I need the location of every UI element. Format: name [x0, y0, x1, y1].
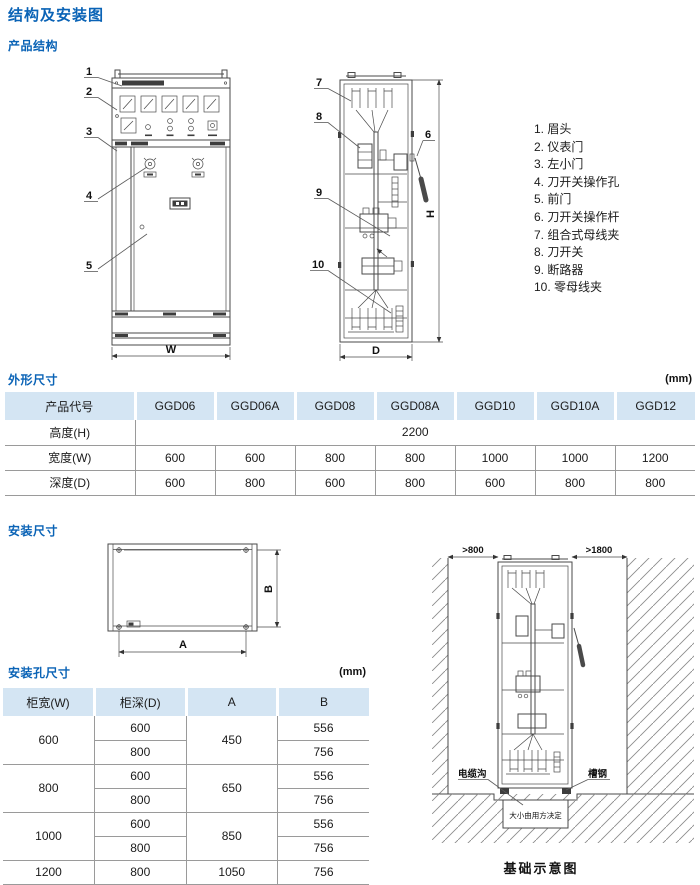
cell-w: 600	[3, 716, 95, 764]
col-header: 柜深(D)	[95, 688, 187, 716]
col-header: GGD06	[135, 392, 215, 420]
top-view-drawing: B A	[95, 536, 295, 668]
cell-b: 756	[278, 740, 370, 764]
col-header: GGD08	[295, 392, 375, 420]
catalog-page: { "page": { "title": "结构及安装图", "unit": "…	[0, 0, 700, 885]
cell-w: 1200	[3, 860, 95, 884]
dim-label-w: W	[166, 344, 177, 356]
install-hole-table: 柜宽(W) 柜深(D) A B 600 600 450 556 800 756 …	[3, 688, 369, 885]
unit-label: (mm)	[665, 373, 692, 385]
col-header: GGD10	[455, 392, 535, 420]
part-number-3: 3	[86, 126, 92, 138]
part-number-9: 9	[316, 187, 322, 199]
legend-item: 3. 左小门	[534, 156, 619, 174]
row-label: 宽度(W)	[5, 445, 135, 470]
table-row: 宽度(W) 600 600 800 800 1000 1000 1200	[5, 445, 695, 470]
cell: 800	[375, 470, 455, 495]
legend-item: 1. 眉头	[534, 121, 619, 139]
cell-d: 600	[95, 716, 187, 740]
cell-d: 600	[95, 764, 187, 788]
row-label: 高度(H)	[5, 420, 135, 445]
table-row: 高度(H) 2200	[5, 420, 695, 445]
dim-label-a: A	[179, 639, 187, 651]
cell: 1200	[615, 445, 695, 470]
part-number-5: 5	[86, 260, 92, 272]
col-header: B	[278, 688, 370, 716]
legend-item: 8. 刀开关	[534, 244, 619, 262]
part-number-7: 7	[316, 77, 322, 89]
dim-label-d: D	[372, 345, 380, 357]
cell: 1000	[535, 445, 615, 470]
legend-item: 7. 组合式母线夹	[534, 227, 619, 245]
cell-b: 556	[278, 716, 370, 740]
legend-item: 4. 刀开关操作孔	[534, 174, 619, 192]
clearance-right-label: >1800	[586, 545, 613, 556]
cell: 600	[215, 445, 295, 470]
col-header: GGD08A	[375, 392, 455, 420]
section-install-dimensions: 安装尺寸	[8, 522, 58, 539]
part-number-1: 1	[86, 66, 92, 78]
cell-w: 800	[3, 764, 95, 812]
cell-a: 450	[186, 716, 278, 764]
trench-note: 大小由用方决定	[509, 810, 562, 820]
col-header: 产品代号	[5, 392, 135, 420]
section-install-holes: 安装孔尺寸	[8, 664, 71, 681]
cell-d: 800	[95, 740, 187, 764]
part-number-6: 6	[425, 129, 431, 141]
table-row: 1200 800 1050 756	[3, 860, 369, 884]
cell-d: 800	[95, 836, 187, 860]
cell: 800	[375, 445, 455, 470]
cell: 1000	[455, 445, 535, 470]
outer-dim-table: 产品代号 GGD06 GGD06A GGD08 GGD08A GGD10 GGD…	[5, 392, 695, 496]
table-header-row: 柜宽(W) 柜深(D) A B	[3, 688, 369, 716]
table-row: 600 600 450 556	[3, 716, 369, 740]
col-header: GGD12	[615, 392, 695, 420]
cable-trench-label: 电缆沟	[458, 768, 487, 780]
section-product-structure: 产品结构	[8, 37, 58, 54]
cell: 600	[135, 445, 215, 470]
legend-item: 6. 刀开关操作杆	[534, 209, 619, 227]
cell-d: 800	[95, 788, 187, 812]
cell-a: 850	[186, 812, 278, 860]
cell-height-value: 2200	[135, 420, 695, 445]
cell: 800	[535, 470, 615, 495]
parts-legend: 1. 眉头 2. 仪表门 3. 左小门 4. 刀开关操作孔 5. 前门 6. 刀…	[534, 121, 619, 297]
cell-a: 650	[186, 764, 278, 812]
channel-steel-label: 槽钢	[588, 768, 608, 780]
front-view-drawing: W 1 2 3 4 5	[60, 56, 305, 370]
side-view-drawing: H D 7 8 9 10 6	[290, 56, 460, 370]
legend-item: 9. 断路器	[534, 262, 619, 280]
cell: 600	[295, 470, 375, 495]
col-header: GGD06A	[215, 392, 295, 420]
unit-label-2: (mm)	[300, 666, 366, 678]
table-row: 1000 600 850 556	[3, 812, 369, 836]
part-number-8: 8	[316, 111, 322, 123]
part-number-4: 4	[86, 190, 93, 202]
cell: 800	[615, 470, 695, 495]
table-header-row: 产品代号 GGD06 GGD06A GGD08 GGD08A GGD10 GGD…	[5, 392, 695, 420]
cell: 600	[455, 470, 535, 495]
col-header: A	[186, 688, 278, 716]
legend-item: 5. 前门	[534, 191, 619, 209]
row-label: 深度(D)	[5, 470, 135, 495]
cell-b: 756	[278, 788, 370, 812]
cell: 600	[135, 470, 215, 495]
table-row: 800 600 650 556	[3, 764, 369, 788]
cell: 800	[295, 445, 375, 470]
cell-d: 800	[95, 860, 187, 884]
part-number-10: 10	[312, 259, 324, 271]
clearance-left-label: >800	[462, 545, 483, 556]
page-title: 结构及安装图	[8, 4, 104, 25]
cell-w: 1000	[3, 812, 95, 860]
foundation-caption: 基础示意图	[432, 858, 650, 877]
cell-a: 1050	[186, 860, 278, 884]
col-header: GGD10A	[535, 392, 615, 420]
cell-b: 556	[278, 764, 370, 788]
dim-label-h: H	[425, 210, 437, 218]
table-row: 深度(D) 600 800 600 800 600 800 800	[5, 470, 695, 495]
cell-d: 600	[95, 812, 187, 836]
foundation-drawing: >800 >1800 大小由用方决定 电缆沟 槽钢	[432, 528, 700, 858]
col-header: 柜宽(W)	[3, 688, 95, 716]
legend-item: 10. 零母线夹	[534, 279, 619, 297]
dim-label-b: B	[263, 585, 275, 593]
section-outer-dimensions: 外形尺寸	[8, 371, 58, 388]
cell: 800	[215, 470, 295, 495]
legend-item: 2. 仪表门	[534, 139, 619, 157]
cell-b: 556	[278, 812, 370, 836]
cell-b: 756	[278, 836, 370, 860]
part-number-2: 2	[86, 86, 92, 98]
cell-b: 756	[278, 860, 370, 884]
